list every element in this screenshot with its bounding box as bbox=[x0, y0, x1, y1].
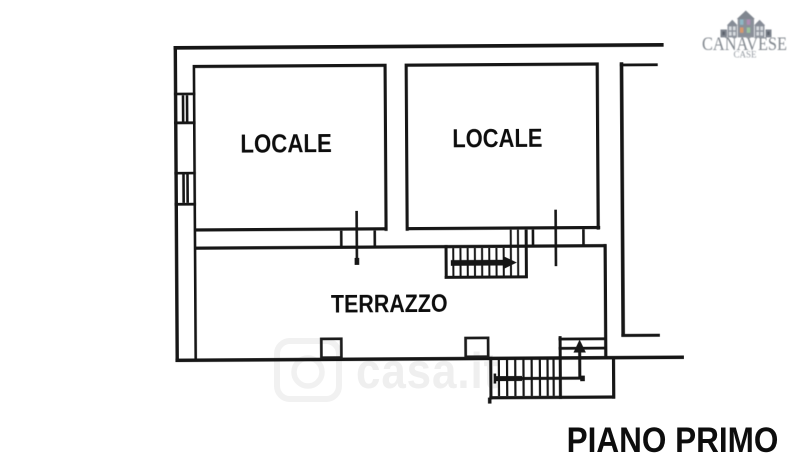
svg-text:LOCALE: LOCALE bbox=[452, 124, 542, 154]
svg-text:CASE: CASE bbox=[733, 50, 756, 60]
svg-text:casa.it: casa.it bbox=[356, 342, 499, 398]
svg-text:PIANO PRIMO: PIANO PRIMO bbox=[567, 422, 779, 461]
svg-text:LOCALE: LOCALE bbox=[240, 129, 332, 159]
svg-text:TERRAZZO: TERRAZZO bbox=[331, 289, 448, 318]
